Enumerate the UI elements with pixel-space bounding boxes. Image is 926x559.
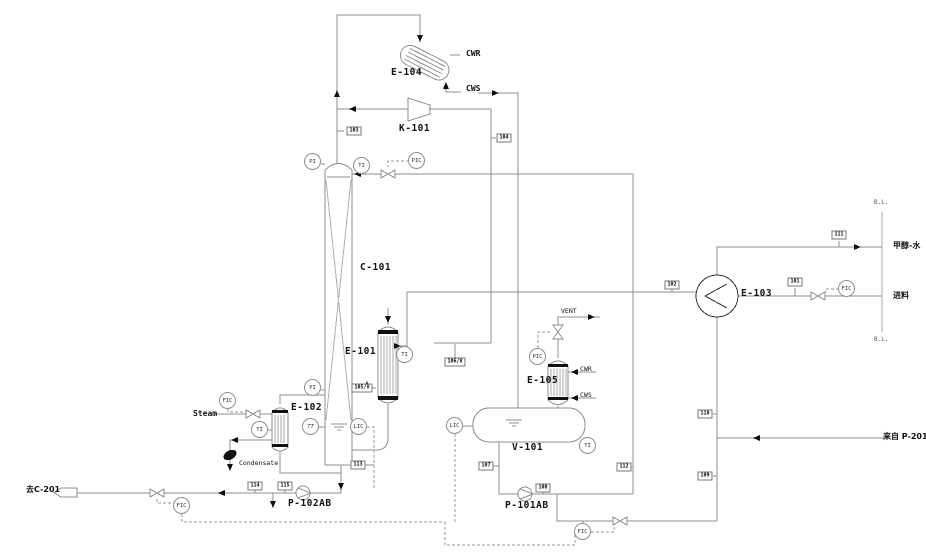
stream-flag: 102 <box>664 281 679 290</box>
stream-flag: 111 <box>831 231 846 240</box>
label-cwr-top: CWR <box>466 50 480 58</box>
label-e103: E-103 <box>741 289 772 299</box>
stream-flag: 110 <box>697 410 712 419</box>
stream-flag: 101 <box>787 278 802 287</box>
label-v101: V-101 <box>512 443 543 453</box>
instrument-bubble-pi: PI <box>304 379 321 396</box>
vessel-v101 <box>473 408 585 442</box>
label-e102: E-102 <box>291 403 322 413</box>
stream-flag: 114 <box>247 482 262 491</box>
label-bl-bot: B.L. <box>874 337 888 343</box>
label-p102ab: P-102AB <box>288 499 332 509</box>
label-from-p201ab: 来自 P-201A/B <box>883 433 926 441</box>
stream-flag: 113 <box>350 461 365 470</box>
label-to-c201: 去C-201 <box>26 486 60 494</box>
exchanger-e101 <box>378 327 398 403</box>
instrument-bubble-fic: FIC <box>173 497 190 514</box>
label-feed: 进料 <box>893 292 909 300</box>
stream-flag: 109 <box>697 472 712 481</box>
label-e105: E-105 <box>527 376 558 386</box>
label-p101ab: P-101AB <box>505 501 549 511</box>
exchanger-e102 <box>272 408 288 451</box>
process-lines <box>77 15 890 524</box>
stream-flag: 103 <box>346 127 361 136</box>
label-cwr-e105: CWR <box>580 366 592 373</box>
flow-arrows <box>218 35 861 508</box>
label-bl-top: B.L. <box>874 200 888 206</box>
instrument-bubble-ti: TI <box>396 346 413 363</box>
instrument-bubble-pic: PIC <box>529 348 546 365</box>
instrument-bubble-ti: TI <box>579 437 596 454</box>
instrument-bubble-ti: TI <box>353 157 370 174</box>
instrument-bubble-fic: FIC <box>574 523 591 540</box>
instrument-bubble-lic: LIC <box>350 418 367 435</box>
stream-flag: 104 <box>496 134 511 143</box>
stream-flag: 115 <box>277 482 292 491</box>
stream-flag: 105/V <box>351 384 372 393</box>
stream-flag: 106/V <box>444 358 465 367</box>
label-steam: Steam <box>193 410 217 418</box>
exchanger-e103 <box>696 275 738 317</box>
instrument-bubble-ti: TI <box>251 421 268 438</box>
label-cws-e105: CWS <box>580 392 592 399</box>
instrument-bubble-pi: PI <box>304 153 321 170</box>
label-cws-top: CWS <box>466 85 480 93</box>
instrument-bubble-lic: LIC <box>446 417 463 434</box>
label-product: 甲醇-水 <box>893 242 920 250</box>
label-e101: E-101 <box>345 347 376 357</box>
pump-p101ab <box>518 487 533 501</box>
instrument-bubble-fic: FIC <box>838 280 855 297</box>
label-vent: VENT <box>561 308 577 315</box>
stream-flag: 108 <box>535 484 550 493</box>
label-c101: C-101 <box>360 263 391 273</box>
control-valves <box>150 170 825 525</box>
column-c101 <box>325 164 352 466</box>
label-e104: E-104 <box>391 68 422 78</box>
pid-diagram: E-104 K-101 C-101 E-101 E-102 E-103 E-10… <box>0 0 926 559</box>
compressor-k101 <box>408 98 430 121</box>
label-condensate: Condensate <box>239 460 278 467</box>
instrument-bubble-tt: TT <box>302 418 319 435</box>
label-k101: K-101 <box>399 124 430 134</box>
stream-flag: 107 <box>478 462 493 471</box>
instrument-bubble-pic: PIC <box>408 152 425 169</box>
instrument-bubble-fic: FIC <box>219 392 236 409</box>
stream-flag: 112 <box>616 463 631 472</box>
